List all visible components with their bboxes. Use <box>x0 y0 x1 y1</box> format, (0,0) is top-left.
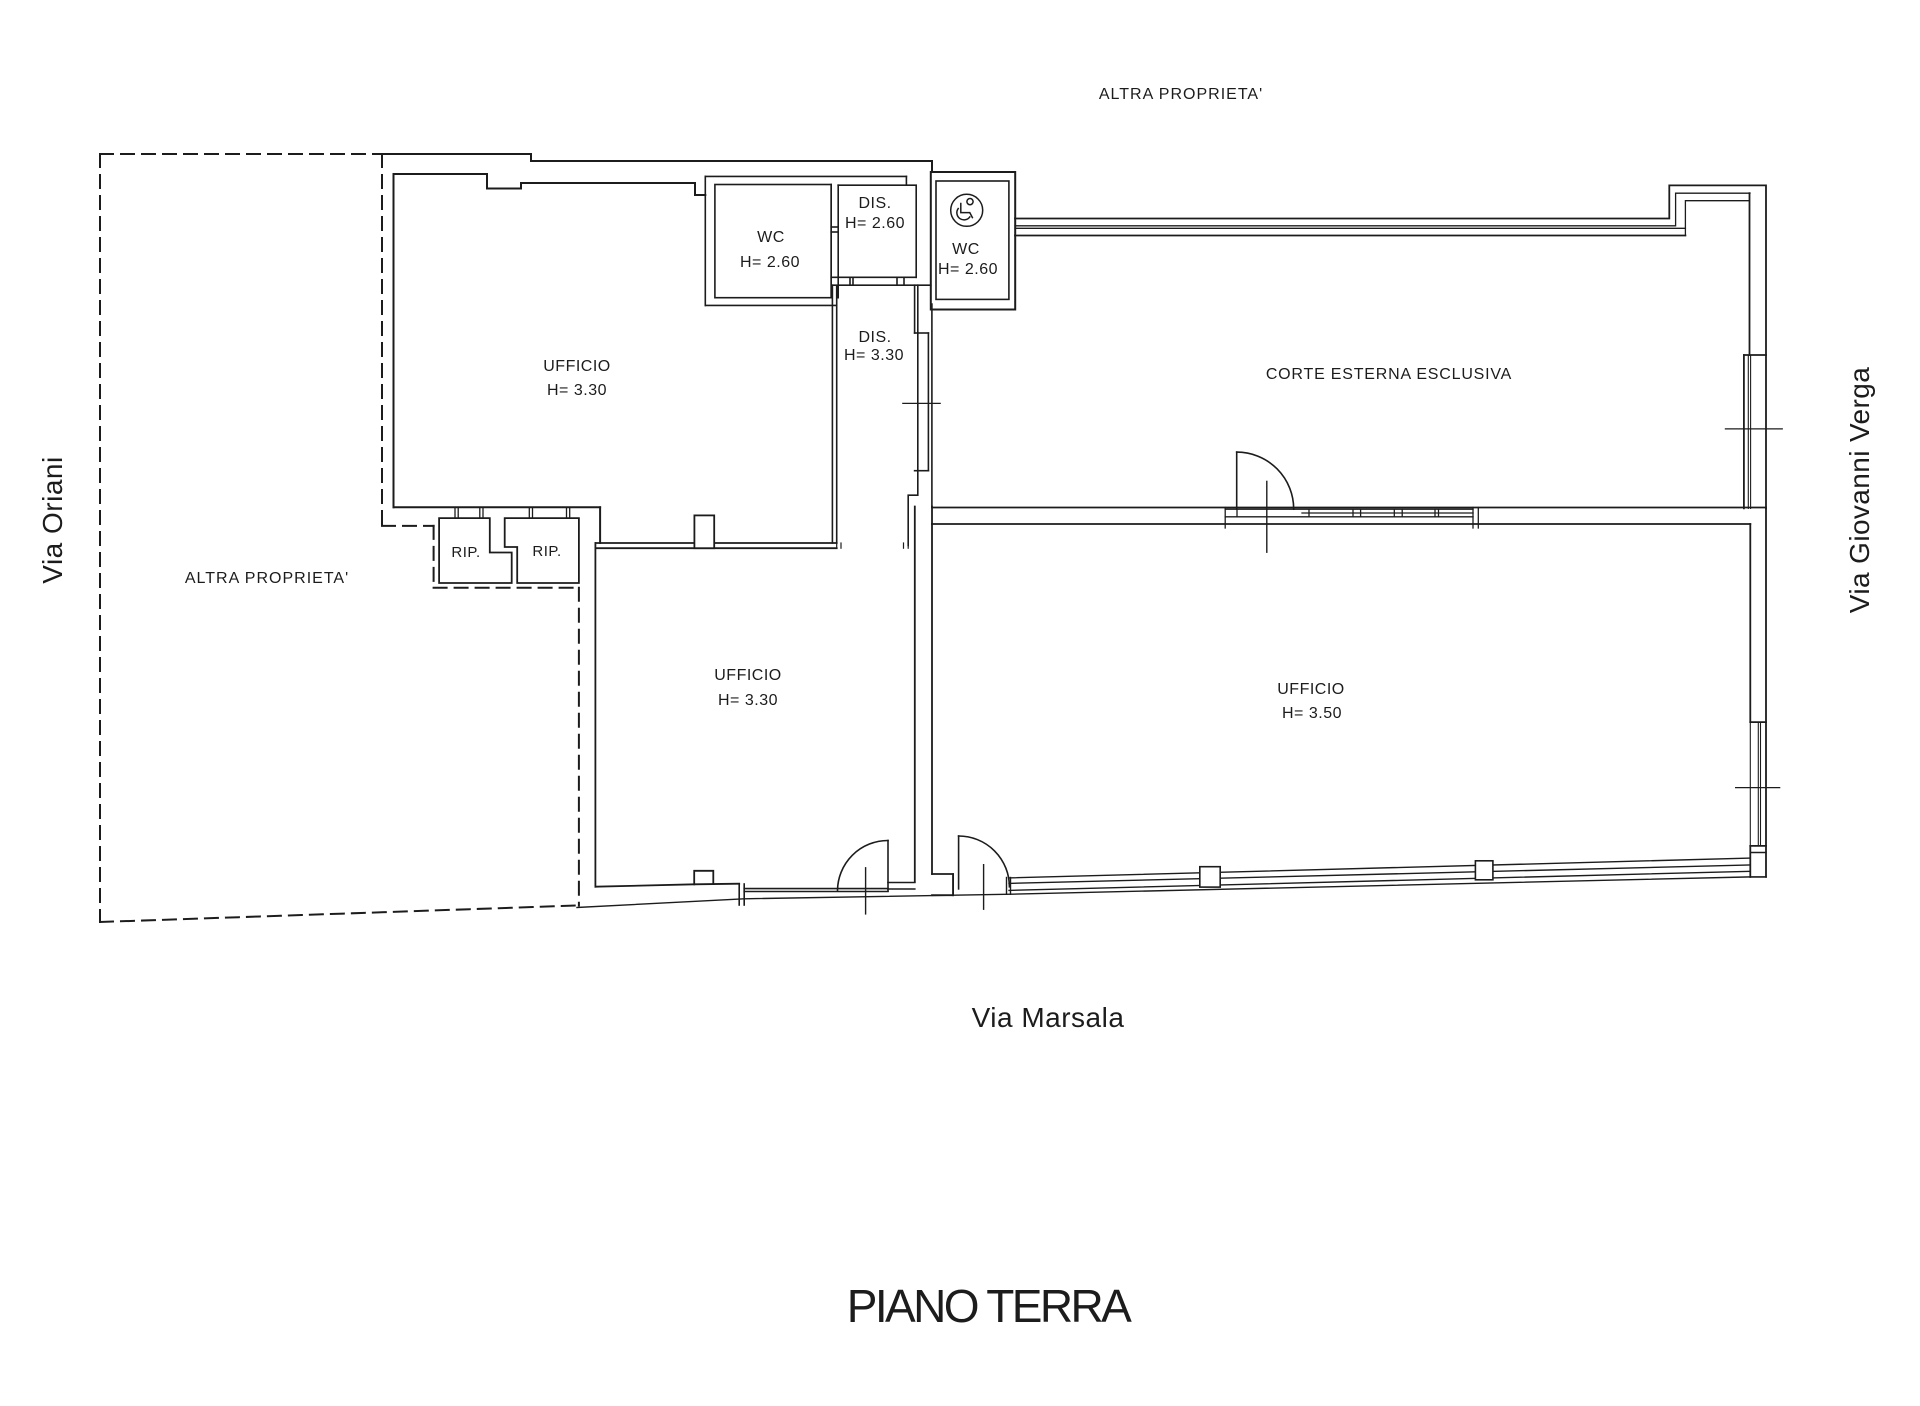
svg-text:H= 3.30: H= 3.30 <box>718 692 778 709</box>
svg-text:Via Marsala: Via Marsala <box>972 1002 1125 1033</box>
svg-text:UFFICIO: UFFICIO <box>543 358 611 375</box>
svg-text:DIS.: DIS. <box>858 195 891 212</box>
svg-text:RIP.: RIP. <box>451 544 480 561</box>
svg-text:CORTE ESTERNA ESCLUSIVA: CORTE ESTERNA ESCLUSIVA <box>1266 366 1512 383</box>
svg-text:H= 2.60: H= 2.60 <box>845 215 905 232</box>
svg-text:H= 3.30: H= 3.30 <box>844 347 904 364</box>
svg-text:ALTRA PROPRIETA': ALTRA PROPRIETA' <box>185 570 349 587</box>
svg-text:Via Giovanni Verga: Via Giovanni Verga <box>1844 367 1875 613</box>
svg-text:WC: WC <box>757 229 785 246</box>
svg-text:H= 2.60: H= 2.60 <box>938 261 998 278</box>
svg-text:RIP.: RIP. <box>532 543 561 560</box>
svg-text:UFFICIO: UFFICIO <box>714 667 782 684</box>
svg-text:H= 3.50: H= 3.50 <box>1282 705 1342 722</box>
svg-text:UFFICIO: UFFICIO <box>1277 681 1345 698</box>
svg-text:H= 3.30: H= 3.30 <box>547 382 607 399</box>
svg-text:Via Oriani: Via Oriani <box>37 456 68 583</box>
svg-text:WC: WC <box>952 241 980 258</box>
svg-text:PIANO TERRA: PIANO TERRA <box>847 1280 1132 1332</box>
svg-text:H= 2.60: H= 2.60 <box>740 254 800 271</box>
svg-text:DIS.: DIS. <box>858 329 891 346</box>
svg-text:ALTRA PROPRIETA': ALTRA PROPRIETA' <box>1099 86 1263 103</box>
